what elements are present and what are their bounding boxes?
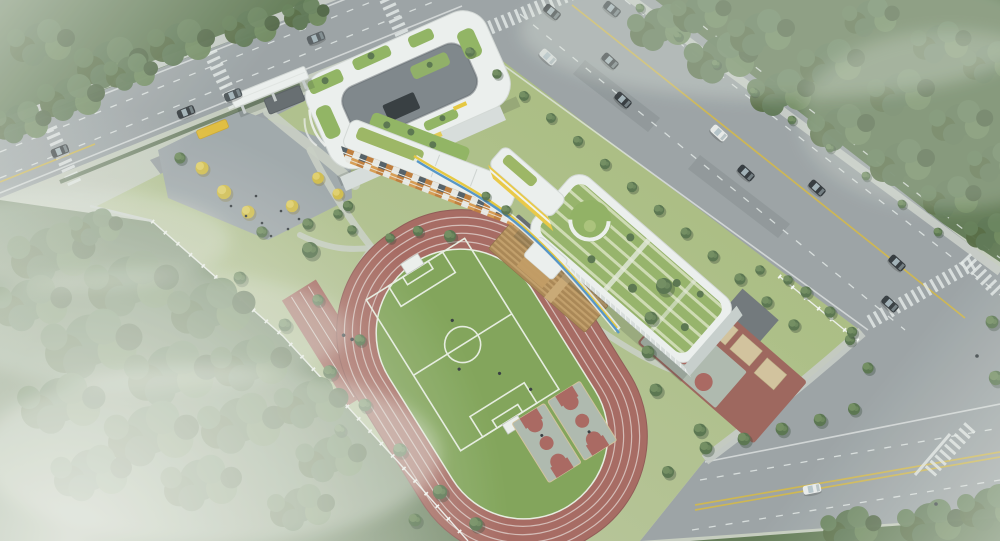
scene-canvas: Aerial rendering of a school campus Bird… — [0, 0, 1000, 541]
overall-tint — [0, 0, 1000, 541]
aerial-campus-render: Aerial rendering of a school campus Bird… — [0, 0, 1000, 541]
mist-overlays — [0, 0, 1000, 541]
